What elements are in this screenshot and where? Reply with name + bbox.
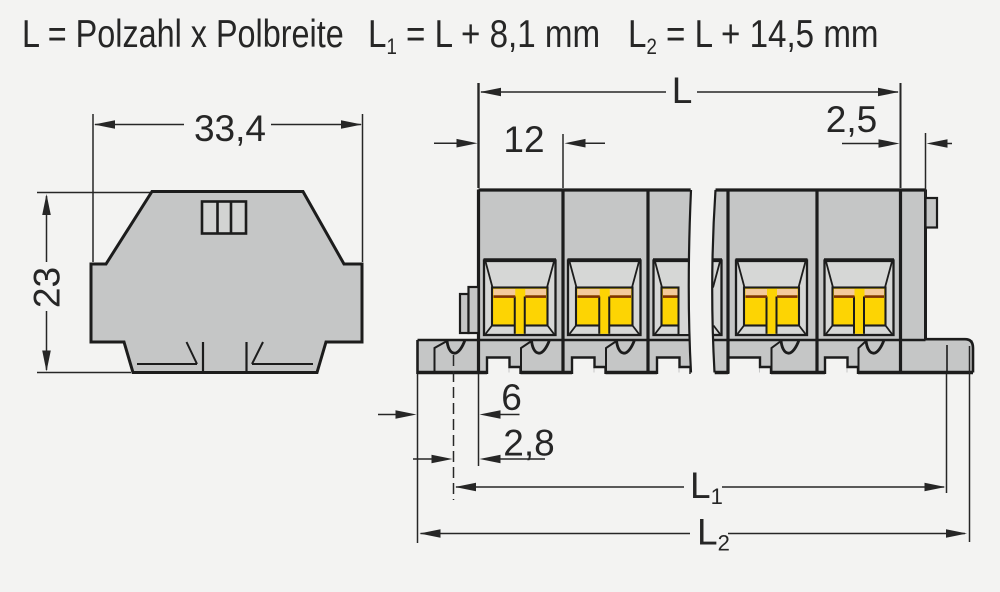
svg-text:33,4: 33,4 [194, 108, 266, 149]
svg-text:2,8: 2,8 [503, 423, 554, 464]
svg-text:L: L [672, 70, 693, 111]
svg-text:L2 = L + 14,5 mm: L2 = L + 14,5 mm [628, 11, 879, 59]
svg-text:2,5: 2,5 [826, 99, 877, 140]
svg-text:L1 = L + 8,1 mm: L1 = L + 8,1 mm [368, 11, 600, 59]
svg-text:12: 12 [503, 119, 544, 160]
svg-text:L = Polzahl x Polbreite: L = Polzahl x Polbreite [22, 12, 344, 56]
svg-text:23: 23 [27, 267, 68, 308]
svg-text:6: 6 [501, 377, 522, 418]
